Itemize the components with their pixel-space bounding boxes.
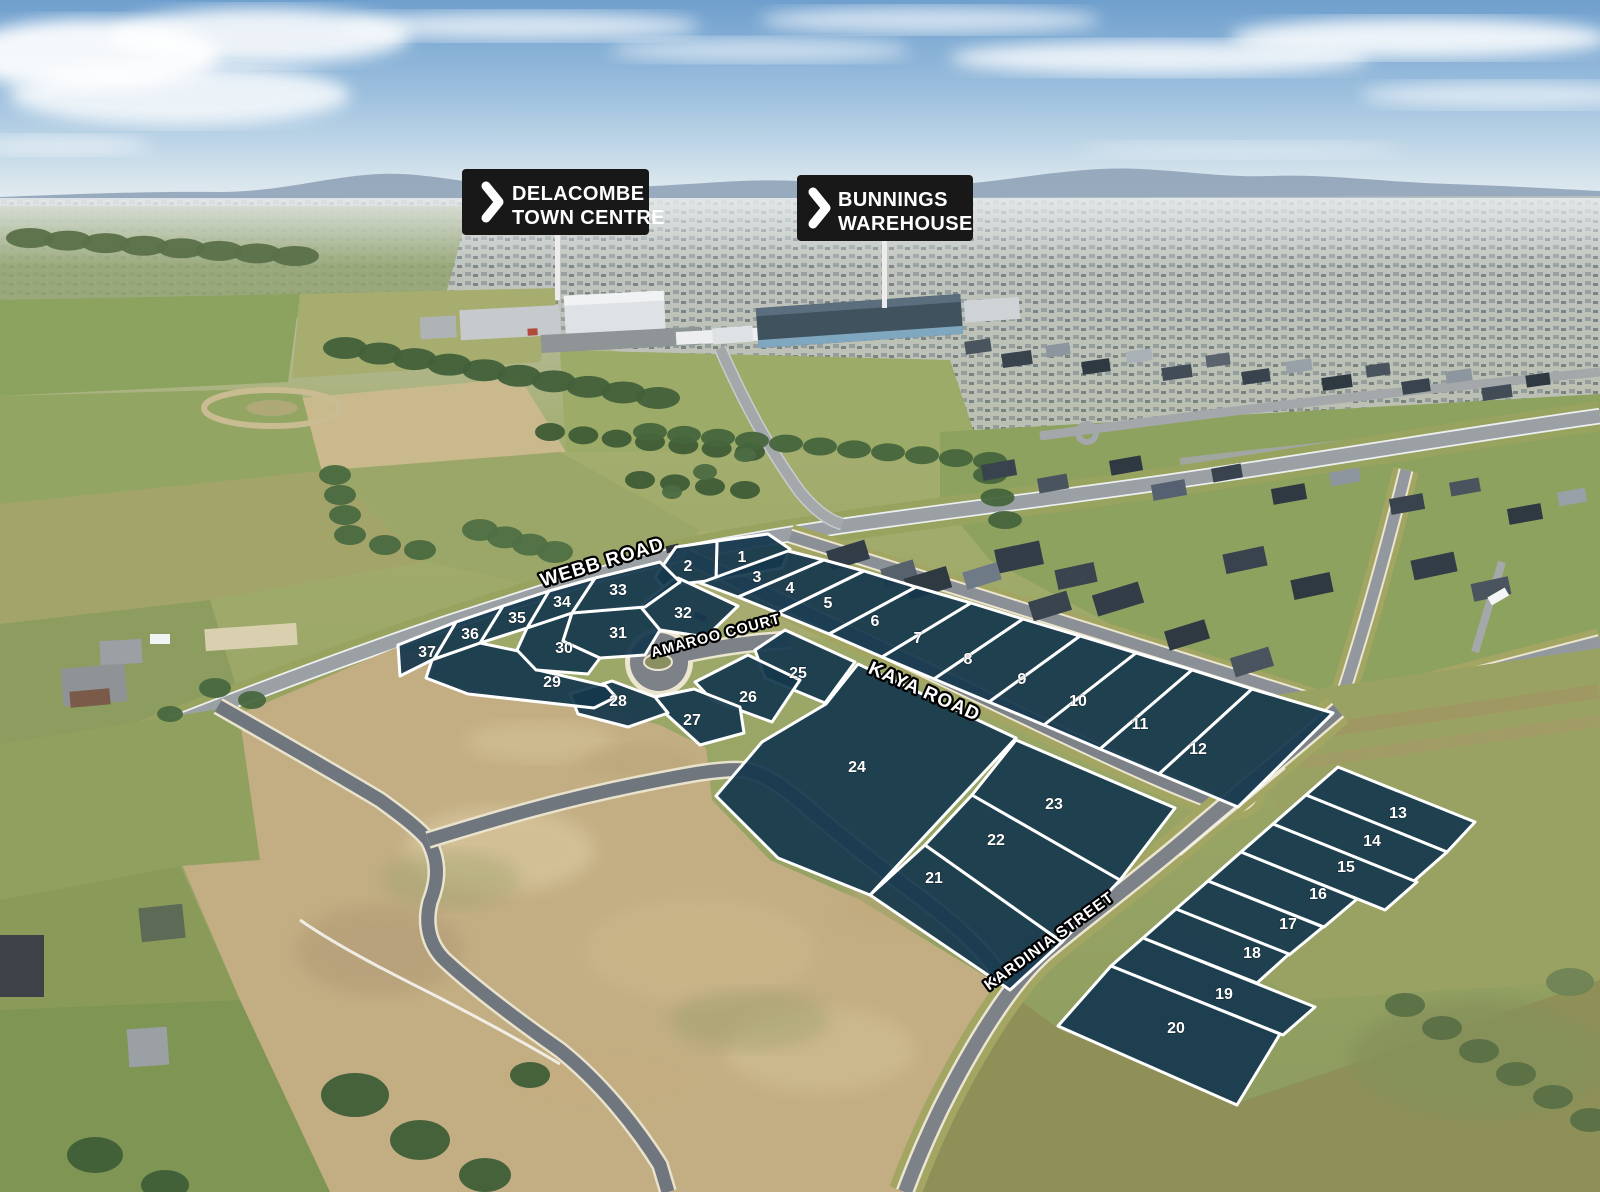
tree <box>334 525 366 545</box>
tree <box>625 471 655 489</box>
tree <box>537 541 573 563</box>
sign-pole <box>555 234 560 300</box>
tree <box>905 446 939 464</box>
lot-24-number: 24 <box>848 759 866 776</box>
estate-map-canvas: 1234567891011121314151617181920212223242… <box>0 0 1600 1192</box>
lot-28-number: 28 <box>609 693 627 710</box>
lot-12-number: 12 <box>1189 741 1207 758</box>
tree <box>238 691 266 709</box>
lot-6-number: 6 <box>871 613 880 630</box>
lot-20-number: 20 <box>1167 1020 1185 1037</box>
lot-7-number: 7 <box>914 630 923 647</box>
lot-27-number: 27 <box>683 712 701 729</box>
lot-1-number: 1 <box>738 549 747 566</box>
tree <box>837 440 871 458</box>
tree <box>568 426 598 444</box>
lot-34-number: 34 <box>553 594 571 611</box>
lot-36-number: 36 <box>461 626 479 643</box>
lot-23-number: 23 <box>1045 796 1063 813</box>
sign-line-2: TOWN CENTRE <box>512 207 665 229</box>
lot-33-number: 33 <box>609 582 627 599</box>
lot-2-number: 2 <box>684 558 693 575</box>
lot-37-number: 37 <box>418 644 436 661</box>
tree <box>271 246 319 266</box>
lot-11-number: 11 <box>1132 716 1149 733</box>
tree <box>329 505 361 525</box>
tree <box>1422 1016 1462 1040</box>
tree <box>693 464 717 480</box>
sign-line-1: DELACOMBE <box>512 183 645 205</box>
tree <box>404 540 436 560</box>
sign-line-2: WAREHOUSE <box>838 213 973 235</box>
lot-25-number: 25 <box>789 665 807 682</box>
tree <box>67 1137 123 1173</box>
lot-17-number: 17 <box>1279 916 1297 933</box>
tree <box>667 426 701 444</box>
lot-3-number: 3 <box>753 569 762 586</box>
lot-30-number: 30 <box>555 640 573 657</box>
tree <box>369 535 401 555</box>
tree <box>157 706 183 722</box>
sign-line-1: BUNNINGS <box>838 189 948 211</box>
tree <box>1546 968 1594 996</box>
lot-26-number: 26 <box>739 689 757 706</box>
tree <box>701 429 735 447</box>
tree <box>730 481 760 499</box>
tree <box>633 423 667 441</box>
tree <box>803 438 837 456</box>
tree <box>510 1062 550 1088</box>
lot-35-number: 35 <box>508 610 526 627</box>
tree <box>199 678 231 698</box>
tree <box>1496 1062 1536 1086</box>
tree <box>871 443 905 461</box>
tree <box>321 1073 389 1117</box>
tree <box>981 489 1015 507</box>
tree <box>769 435 803 453</box>
tree <box>602 430 632 448</box>
lot-4-number: 4 <box>786 580 795 597</box>
lot-18-number: 18 <box>1243 945 1261 962</box>
lot-5-number: 5 <box>824 595 833 612</box>
tree <box>459 1158 511 1192</box>
tree <box>319 465 351 485</box>
lot-13-number: 13 <box>1389 805 1407 822</box>
tree <box>1533 1085 1573 1109</box>
tree <box>735 432 769 450</box>
tree <box>1459 1039 1499 1063</box>
lot-15-number: 15 <box>1337 859 1355 876</box>
lot-22-number: 22 <box>987 832 1005 849</box>
lot-16-number: 16 <box>1309 886 1327 903</box>
lot-19-number: 19 <box>1215 986 1233 1003</box>
lot-9-number: 9 <box>1018 671 1027 688</box>
lot-21-number: 21 <box>925 870 943 887</box>
tree <box>636 387 680 409</box>
tree <box>535 423 565 441</box>
lot-31-number: 31 <box>609 625 627 642</box>
tree <box>734 448 756 462</box>
sign-pole <box>882 240 887 308</box>
tree <box>390 1120 450 1160</box>
tree <box>988 511 1022 529</box>
tree <box>324 485 356 505</box>
lot-29-number: 29 <box>543 674 561 691</box>
lot-10-number: 10 <box>1069 693 1087 710</box>
lot-32-number: 32 <box>674 605 692 622</box>
tree <box>1385 993 1425 1017</box>
aerial-estate-photo: 1234567891011121314151617181920212223242… <box>0 0 1600 1192</box>
tree <box>662 485 682 499</box>
lot-8-number: 8 <box>964 651 973 668</box>
lot-14-number: 14 <box>1363 833 1381 850</box>
tree <box>939 449 973 467</box>
tree <box>695 478 725 496</box>
